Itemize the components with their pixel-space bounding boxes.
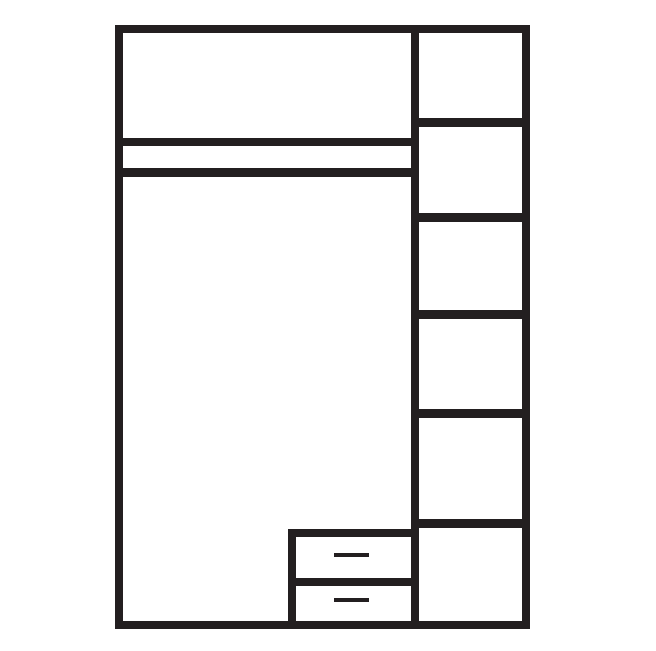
wardrobe-diagram [0,0,656,651]
shelf-band-top-line [123,138,411,146]
right-shelf-divider-3 [419,310,522,319]
right-shelf-divider-1 [419,118,522,127]
drawer-divider-line [288,578,411,586]
right-shelf-divider-2 [419,213,522,222]
center-vertical-divider [411,25,419,629]
drawer-unit-top-line [288,529,411,537]
drawer-unit-left-edge [288,529,296,621]
shelf-band-bottom-line [123,168,411,177]
drawer-2-handle-icon [334,598,369,602]
right-shelf-divider-5 [419,519,522,528]
wardrobe-outer-frame [115,25,530,629]
right-shelf-divider-4 [419,409,522,418]
drawer-1-handle-icon [334,553,369,557]
